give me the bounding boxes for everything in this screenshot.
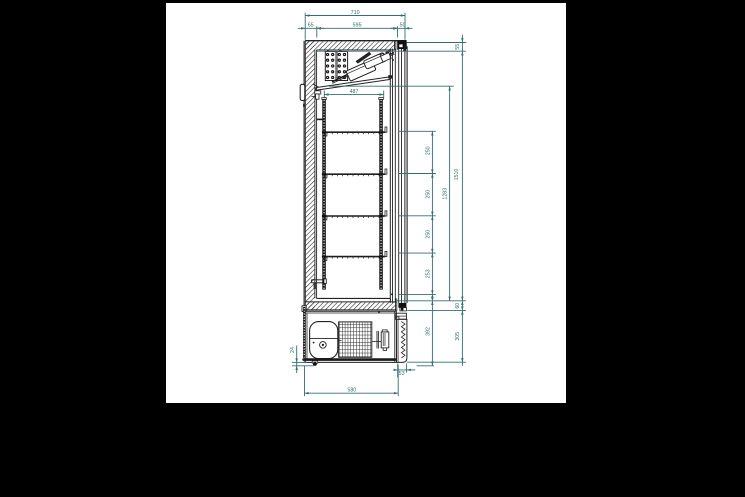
svg-text:595: 595 [353,23,362,29]
svg-text:24: 24 [290,347,296,353]
svg-text:1283: 1283 [442,188,448,200]
svg-text:65: 65 [308,23,314,29]
svg-text:250: 250 [426,230,432,239]
svg-text:250: 250 [426,190,432,199]
svg-text:1510: 1510 [454,169,460,181]
svg-text:580: 580 [347,388,356,394]
svg-text:250: 250 [426,146,432,155]
svg-text:710: 710 [351,10,360,16]
svg-text:55: 55 [455,44,461,50]
svg-text:392: 392 [426,327,432,336]
svg-text:60: 60 [455,303,461,309]
svg-text:487: 487 [350,89,359,95]
svg-text:253: 253 [426,269,432,278]
svg-text:305: 305 [455,332,461,341]
svg-text:50: 50 [400,23,406,29]
svg-text:53: 53 [399,371,405,377]
